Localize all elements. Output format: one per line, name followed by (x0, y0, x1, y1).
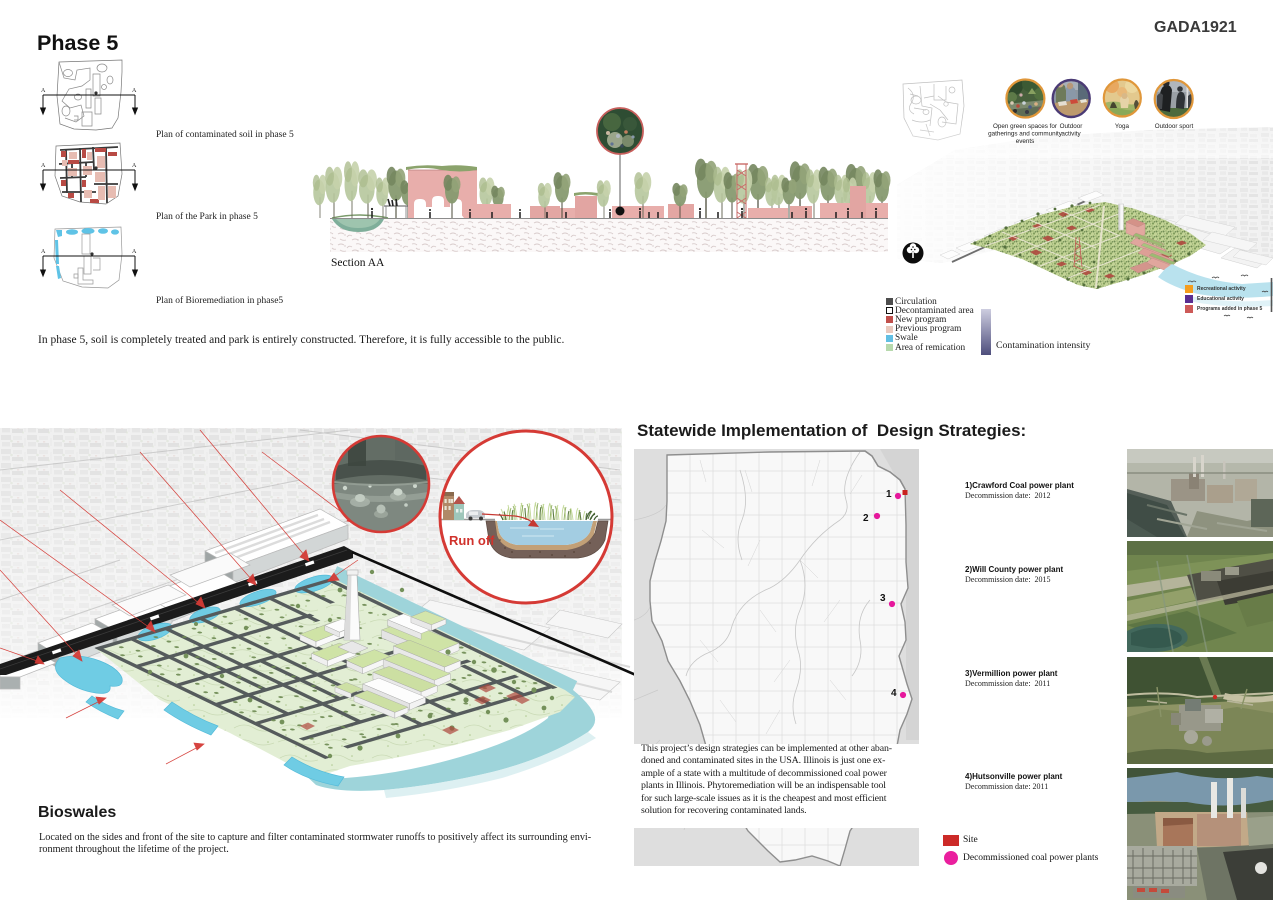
svg-text:A: A (41, 88, 46, 94)
svg-text:A: A (132, 249, 137, 255)
svg-text:gatherings and community: gatherings and community (988, 131, 1063, 138)
svg-text:Outdoor: Outdoor (1060, 123, 1083, 130)
svg-text:Yoga: Yoga (1115, 123, 1130, 130)
svg-text:A: A (41, 249, 46, 255)
svg-text:A: A (132, 163, 137, 169)
svg-text:1: 1 (886, 489, 892, 500)
svg-text:A: A (41, 163, 46, 169)
svg-text:3: 3 (880, 593, 886, 604)
svg-text:Outdoor sport: Outdoor sport (1155, 123, 1194, 130)
svg-text:4: 4 (891, 688, 897, 699)
svg-text:Open green spaces for: Open green spaces for (993, 123, 1057, 130)
svg-text:events: events (1016, 138, 1035, 145)
svg-text:2: 2 (863, 513, 869, 524)
svg-text:activity: activity (1061, 131, 1081, 138)
svg-text:A: A (132, 88, 137, 94)
svg-text:Run off: Run off (449, 533, 495, 548)
